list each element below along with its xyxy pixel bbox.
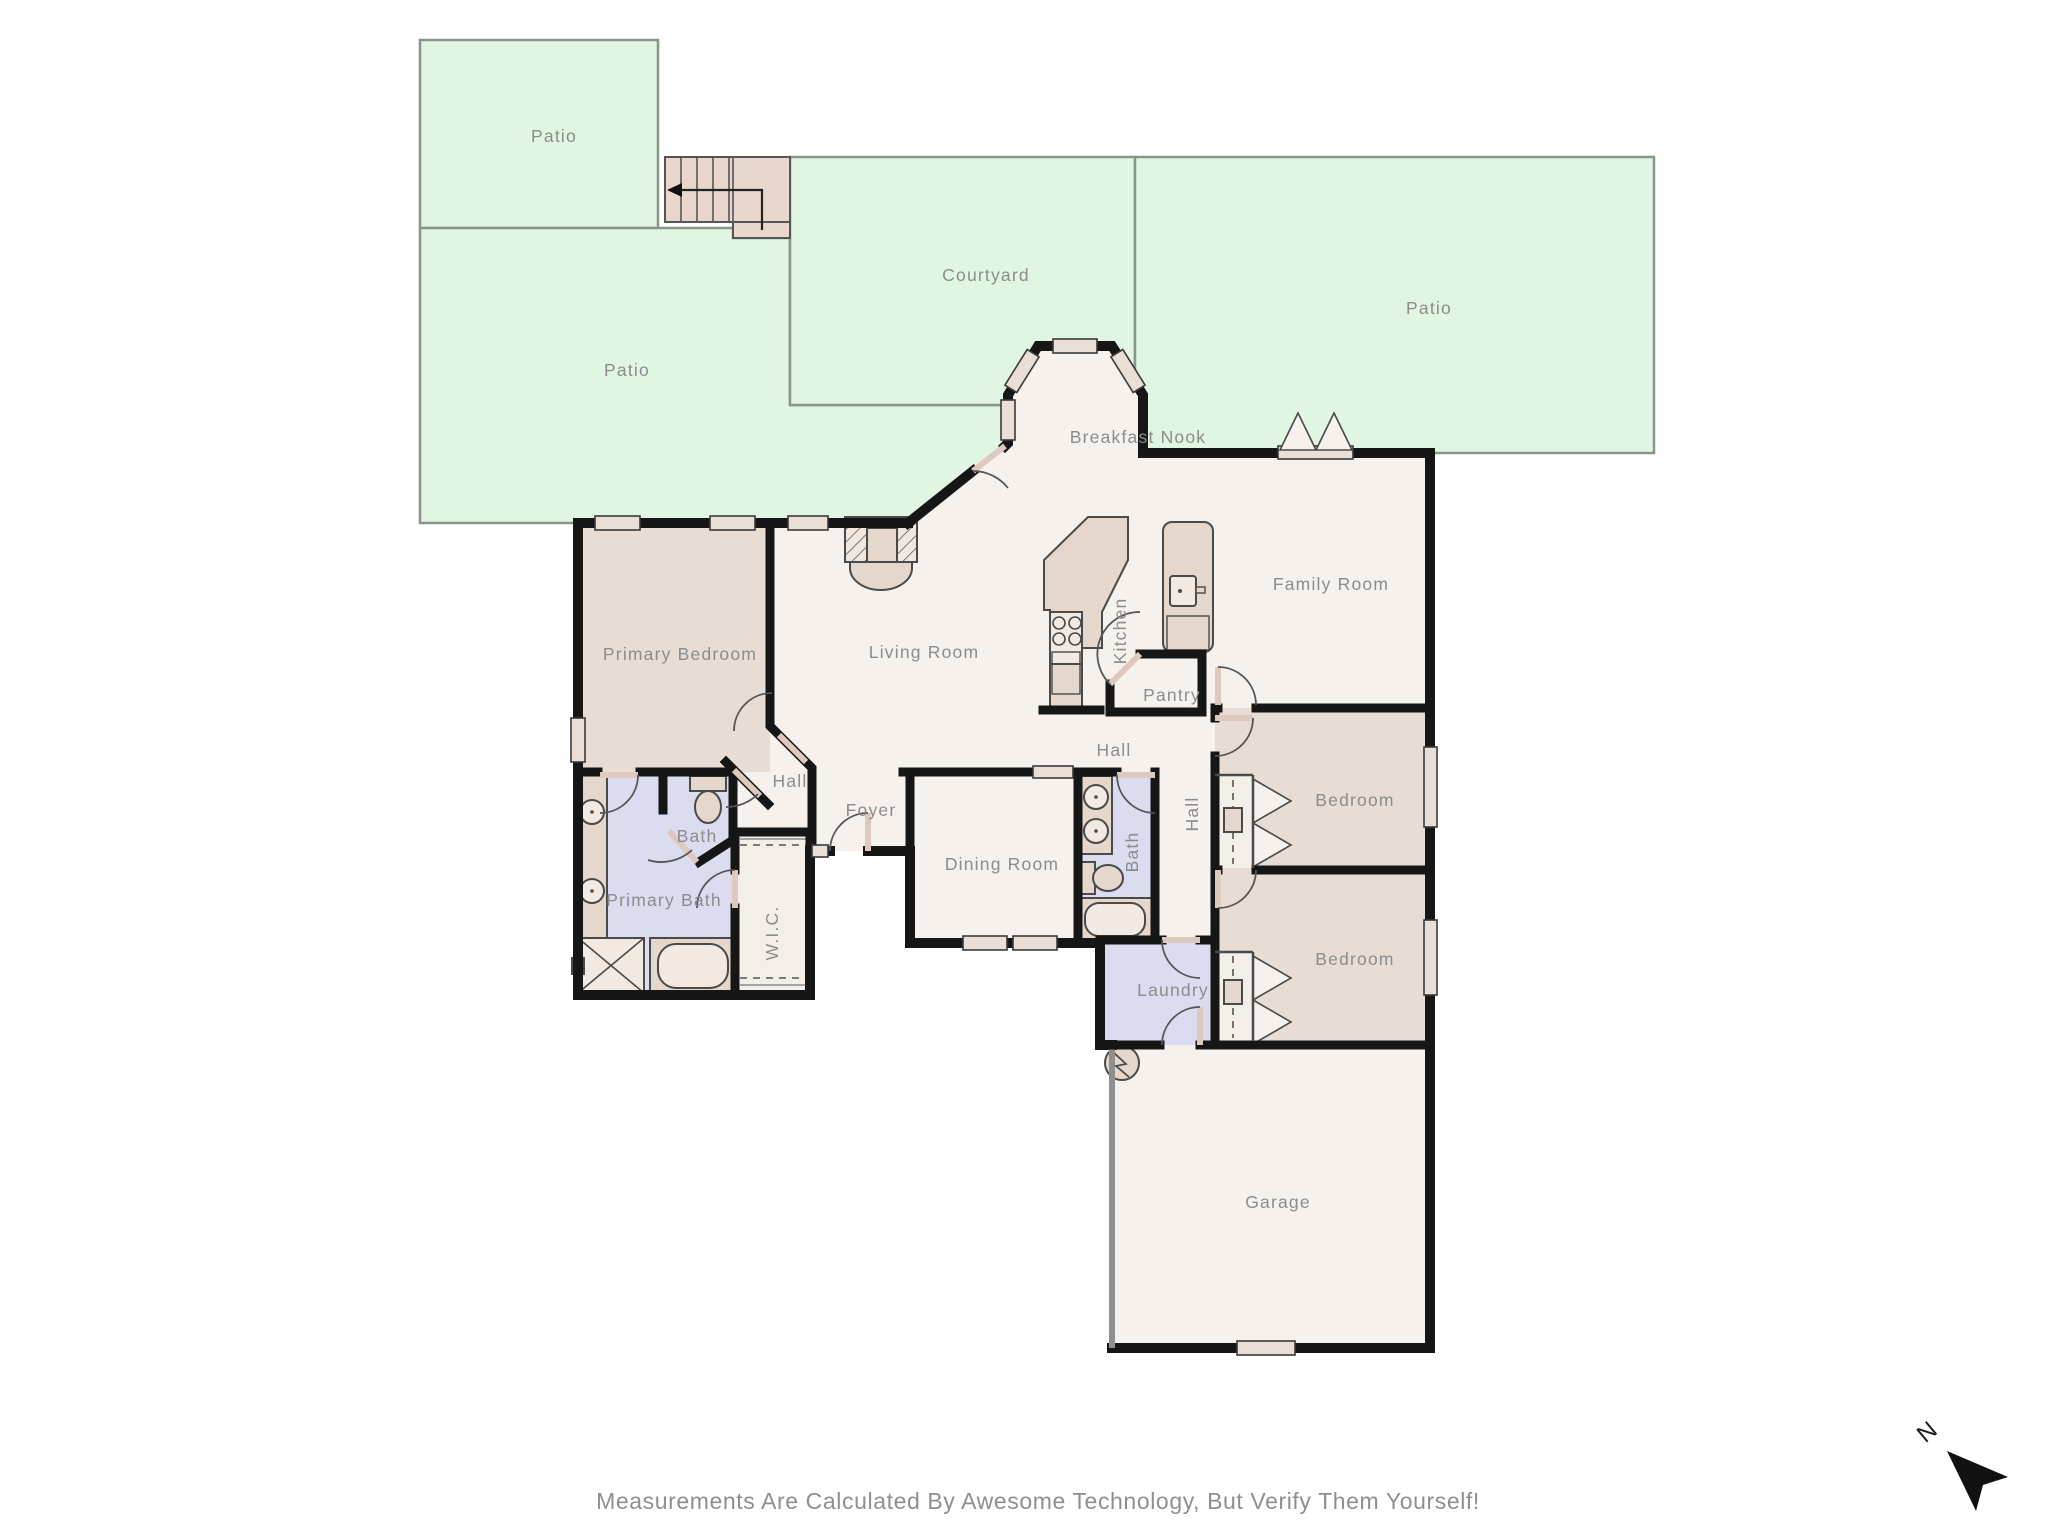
kitchen-island bbox=[1163, 522, 1213, 652]
floor-plan-page: Patio Patio Courtyard Patio bbox=[0, 0, 2048, 1536]
cased-opening bbox=[1033, 766, 1073, 778]
room-label-primary-bath: Primary Bath bbox=[606, 890, 722, 910]
compass: N bbox=[1912, 1416, 2008, 1511]
room-label-laundry: Laundry bbox=[1137, 980, 1209, 1000]
window bbox=[1237, 1341, 1295, 1355]
room-label-garage: Garage bbox=[1245, 1192, 1311, 1212]
window bbox=[595, 516, 640, 530]
room-label-pantry: Pantry bbox=[1143, 685, 1201, 705]
window bbox=[1013, 936, 1057, 950]
room-label-breakfast-nook: Breakfast Nook bbox=[1070, 427, 1206, 447]
window bbox=[1053, 339, 1097, 353]
room-label-patio-top-left: Patio bbox=[531, 126, 577, 146]
window bbox=[710, 516, 755, 530]
bathtub-fixture bbox=[650, 938, 735, 995]
room-label-patio-left: Patio bbox=[604, 360, 650, 380]
window bbox=[571, 718, 585, 762]
patio-right-area bbox=[1135, 157, 1654, 453]
room-label-kitchen: Kitchen bbox=[1110, 598, 1130, 665]
disclaimer-text: Measurements Are Calculated By Awesome T… bbox=[596, 1488, 1480, 1514]
room-label-bedroom-2: Bedroom bbox=[1315, 949, 1394, 969]
island-sink-fixture bbox=[1170, 576, 1196, 606]
room-label-wic: W.I.C. bbox=[762, 906, 782, 961]
room-label-hall-bedrooms: Hall bbox=[1182, 797, 1202, 832]
room-label-dining-room: Dining Room bbox=[945, 854, 1059, 874]
window bbox=[1424, 920, 1437, 995]
window bbox=[788, 516, 828, 530]
room-label-bedroom-1: Bedroom bbox=[1315, 790, 1394, 810]
north-arrow-icon bbox=[1947, 1451, 2008, 1511]
room-label-hall-kitchen: Hall bbox=[1097, 740, 1132, 760]
window bbox=[1001, 400, 1015, 440]
room-label-living-room: Living Room bbox=[869, 642, 979, 662]
room-label-courtyard: Courtyard bbox=[942, 265, 1030, 285]
north-label: N bbox=[1912, 1416, 1943, 1448]
staircase bbox=[665, 157, 790, 238]
room-label-patio-right: Patio bbox=[1406, 298, 1452, 318]
room-label-family-room: Family Room bbox=[1273, 574, 1389, 594]
room-label-bath-hall: Bath bbox=[1122, 832, 1142, 873]
window bbox=[1424, 747, 1437, 827]
room-label-hall-primary: Hall bbox=[773, 771, 808, 791]
bathtub-fixture bbox=[1078, 898, 1152, 941]
window bbox=[812, 845, 828, 857]
floor-plan-canvas: Patio Patio Courtyard Patio bbox=[0, 0, 2048, 1536]
window bbox=[963, 936, 1007, 950]
room-label-primary-wc: Bath bbox=[677, 826, 718, 846]
room-label-primary-bedroom: Primary Bedroom bbox=[603, 644, 757, 664]
room-label-foyer: Foyer bbox=[846, 800, 897, 820]
toilet-fixture bbox=[1080, 862, 1123, 894]
